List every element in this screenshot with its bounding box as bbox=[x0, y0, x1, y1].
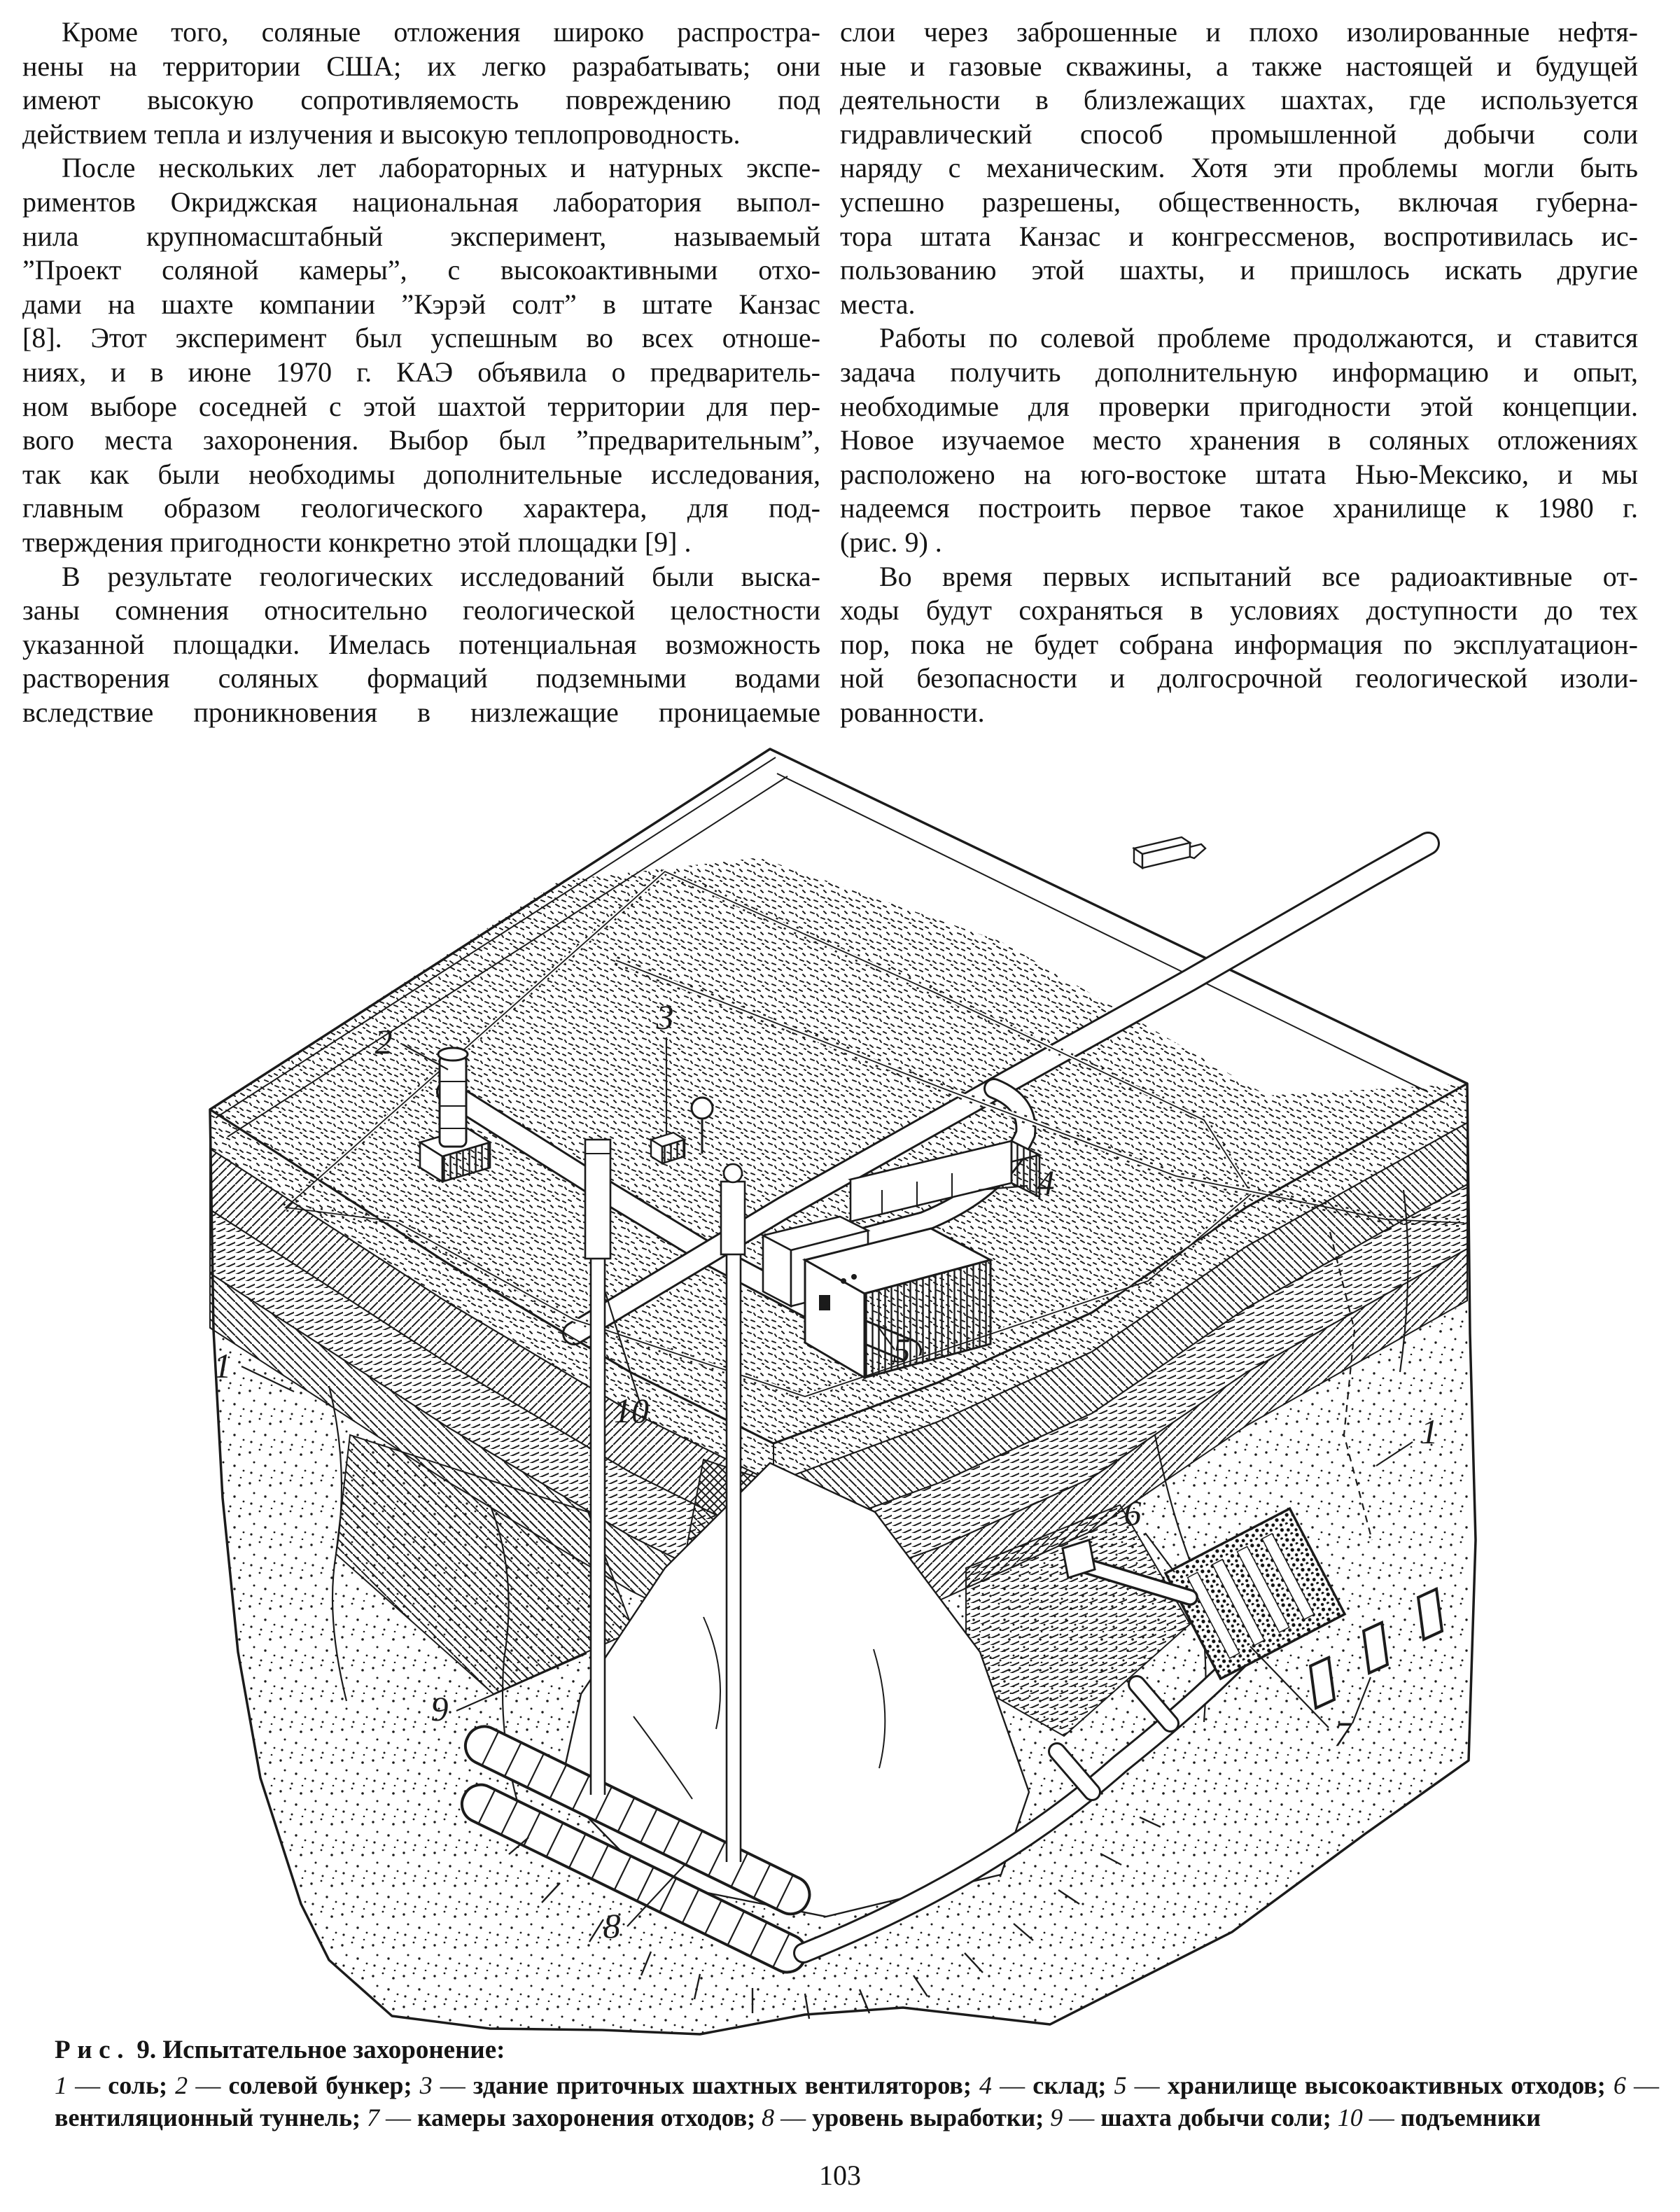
figure-legend: 1 — соль; 2 — солевой бункер; 3 — здание… bbox=[55, 2069, 1659, 2134]
text-column-left: Кроме того, соляные отложения широко рас… bbox=[22, 15, 820, 729]
legend-entry: 3 — здание приточных шахтных вентиляторо… bbox=[420, 2071, 979, 2099]
legend-entry: 2 — солевой бункер; bbox=[175, 2071, 419, 2099]
figure-label-4: 4 bbox=[1037, 1163, 1055, 1202]
figure-9: 1 2 3 4 5 6 7 8 9 10 1 bbox=[140, 741, 1484, 2037]
legend-entry: 9 — шахта добычи соли; bbox=[1050, 2103, 1337, 2131]
figure-title: Испытательное захоронение: bbox=[162, 2036, 505, 2064]
figure-number: 9. bbox=[136, 2036, 156, 2064]
figure-label-3: 3 bbox=[656, 997, 674, 1037]
figure-number-label: Рис. bbox=[55, 2036, 130, 2064]
figure-label-6: 6 bbox=[1124, 1493, 1142, 1532]
legend-entry: 10 — подъемники bbox=[1338, 2103, 1541, 2131]
paragraph: Во время первых испытаний все радиоактив… bbox=[840, 560, 1638, 730]
text-column-right: слои через заброшенные и плохо изолирова… bbox=[840, 15, 1638, 729]
paragraph: После нескольких лет лабораторных и нату… bbox=[22, 151, 820, 559]
figure-label-10: 10 bbox=[614, 1391, 649, 1430]
figure-label-7: 7 bbox=[1334, 1714, 1353, 1753]
truck bbox=[1134, 837, 1205, 868]
figure-caption-title: Рис. 9. Испытательное захоронение: bbox=[55, 2034, 1659, 2066]
figure-label-1-left: 1 bbox=[214, 1346, 232, 1385]
figure-caption: Рис. 9. Испытательное захоронение: 1 — с… bbox=[55, 2034, 1659, 2134]
figure-label-8: 8 bbox=[603, 1906, 621, 1945]
document-page: Кроме того, соляные отложения широко рас… bbox=[0, 0, 1680, 2212]
legend-entry: 7 — камеры захоронения отходов; bbox=[367, 2103, 762, 2131]
figure-label-9: 9 bbox=[431, 1689, 449, 1728]
paragraph: В результате геологических исследований … bbox=[22, 560, 820, 730]
legend-entry: 5 — хранилище высокоактивных отходов; bbox=[1114, 2071, 1613, 2099]
figure-label-1-right: 1 bbox=[1421, 1412, 1438, 1451]
legend-entry: 8 — уровень выработки; bbox=[762, 2103, 1050, 2131]
paragraph: Кроме того, соляные отложения широко рас… bbox=[22, 15, 820, 151]
figure-9-cutaway-diagram: 1 2 3 4 5 6 7 8 9 10 1 bbox=[140, 741, 1484, 2037]
paragraph: Работы по солевой проблеме продолжаются,… bbox=[840, 321, 1638, 559]
legend-entry: 1 — соль; bbox=[55, 2071, 175, 2099]
figure-label-5: 5 bbox=[893, 1331, 911, 1370]
legend-entry: 4 — склад; bbox=[979, 2071, 1114, 2099]
paragraph: слои через заброшенные и плохо изолирова… bbox=[840, 15, 1638, 321]
page-number: 103 bbox=[0, 2159, 1680, 2192]
figure-label-2: 2 bbox=[375, 1022, 393, 1061]
fan-building bbox=[651, 1133, 685, 1163]
